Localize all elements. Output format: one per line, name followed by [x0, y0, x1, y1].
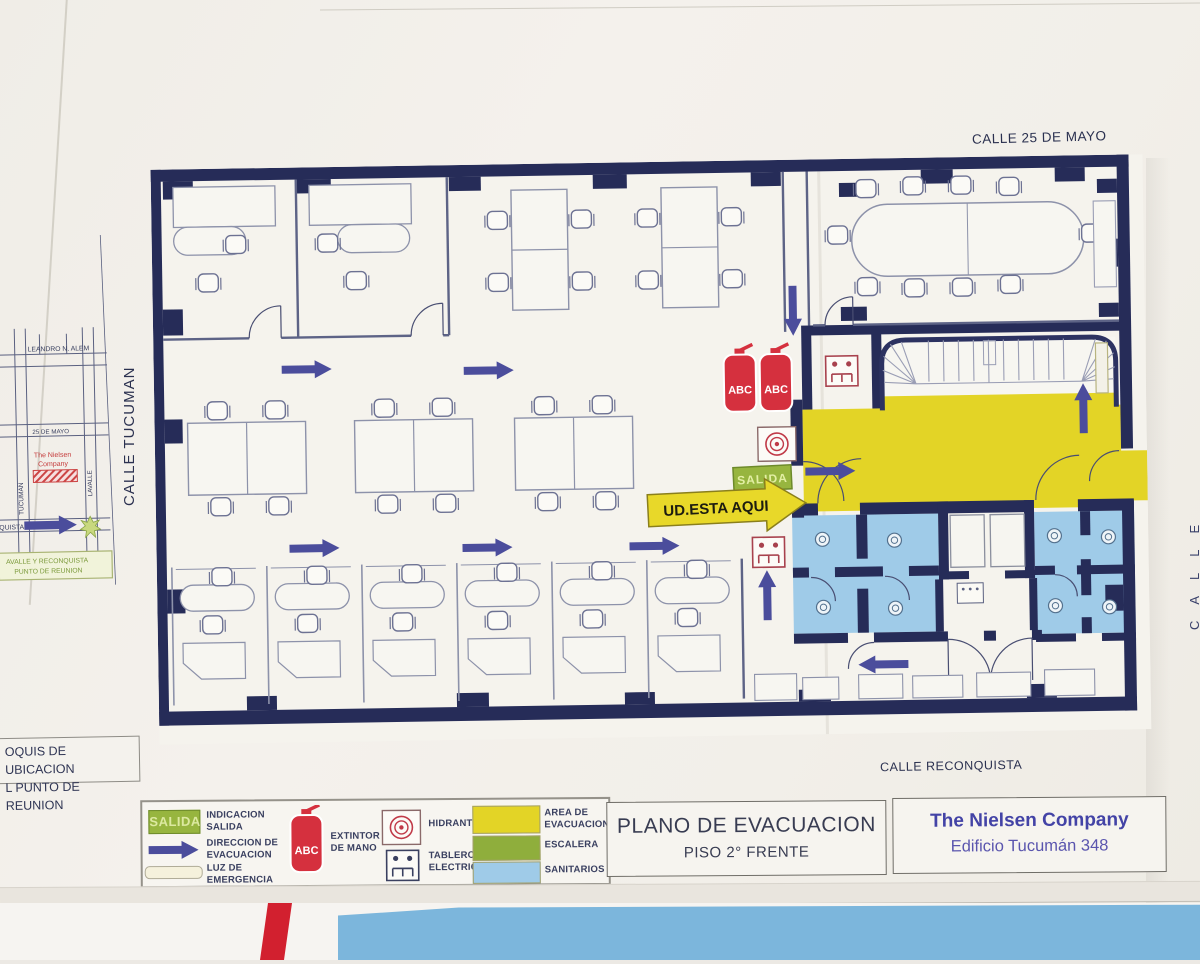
- legend-swatch-evacuation: [472, 805, 540, 833]
- svg-text:ABC: ABC: [295, 845, 319, 857]
- legend-swatch-stairs: [472, 835, 540, 860]
- legend-swatch-sanitarios: [473, 861, 541, 883]
- legend-label-direccion: DIRECCION DE EVACUACION: [206, 837, 278, 861]
- plan-subtitle: PISO 2° FRENTE: [608, 843, 886, 862]
- title-block: PLANO DE EVACUACION PISO 2° FRENTE: [606, 800, 887, 877]
- legend-label-escalera: ESCALERA: [545, 839, 599, 851]
- legend-label-extintor: EXTINTOR DE MANO: [330, 831, 380, 855]
- legend-arrow-icon: [149, 840, 199, 860]
- legend-label-area: AREA DE EVACUACION: [544, 807, 609, 831]
- company-address: Edificio Tucumán 348: [894, 836, 1166, 857]
- plan-title: PLANO DE EVACUACION: [607, 813, 885, 839]
- legend-electrical-panel-icon: [383, 848, 423, 882]
- legend-extinguisher-icon: ABC: [284, 805, 329, 881]
- legend-label-luz: LUZ DE EMERGENCIA: [207, 862, 274, 886]
- bottom-row: SALIDA INDICACION SALIDA DIRECCION DE EV…: [0, 0, 1200, 964]
- legend-emergency-light-icon: [145, 866, 203, 879]
- legend-label-sanitarios: SANITARIOS: [545, 864, 605, 876]
- wall-below-poster: [0, 903, 1200, 960]
- evacuation-plan-poster: CALLE 25 DE MAYO CALLE TUCUMAN CALLE REC…: [0, 0, 1200, 905]
- legend-exit-badge: SALIDA: [148, 810, 200, 834]
- blue-wall-panel: [338, 903, 1200, 960]
- company-name: The Nielsen Company: [893, 809, 1165, 833]
- red-stripe: [260, 903, 292, 960]
- legend-hydrant-icon: [380, 808, 422, 846]
- company-block: The Nielsen Company Edificio Tucumán 348: [892, 796, 1167, 874]
- legend: SALIDA INDICACION SALIDA DIRECCION DE EV…: [140, 797, 611, 888]
- legend-label-indicacion: INDICACION SALIDA: [206, 809, 265, 833]
